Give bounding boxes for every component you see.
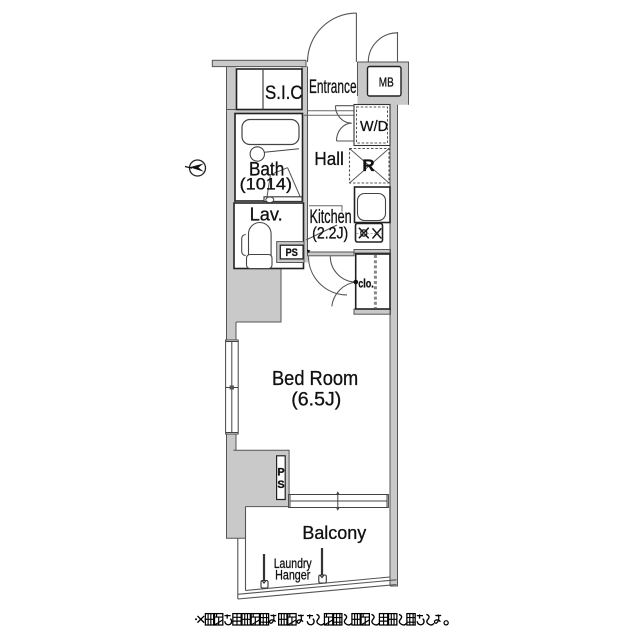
- svg-text:(1014): (1014): [240, 175, 292, 194]
- svg-text:W/D: W/D: [360, 118, 388, 135]
- svg-text:(6.5J): (6.5J): [291, 390, 341, 411]
- svg-text:Balcony: Balcony: [302, 523, 367, 543]
- svg-text:Bed Room: Bed Room: [272, 368, 358, 390]
- svg-text:R: R: [362, 156, 374, 175]
- svg-text:P: P: [277, 466, 284, 478]
- svg-text:Hall: Hall: [314, 149, 343, 169]
- svg-text:S: S: [277, 479, 284, 491]
- svg-text:Hanger: Hanger: [275, 567, 311, 582]
- svg-text:PS: PS: [285, 247, 298, 259]
- svg-text:Lav.: Lav.: [250, 203, 283, 224]
- svg-text:(2.2J): (2.2J): [312, 224, 348, 243]
- svg-text:S.I.C: S.I.C: [265, 83, 303, 104]
- svg-text:Entrance: Entrance: [309, 76, 357, 98]
- svg-text:MB: MB: [379, 74, 394, 89]
- svg-text:clo.: clo.: [358, 278, 374, 290]
